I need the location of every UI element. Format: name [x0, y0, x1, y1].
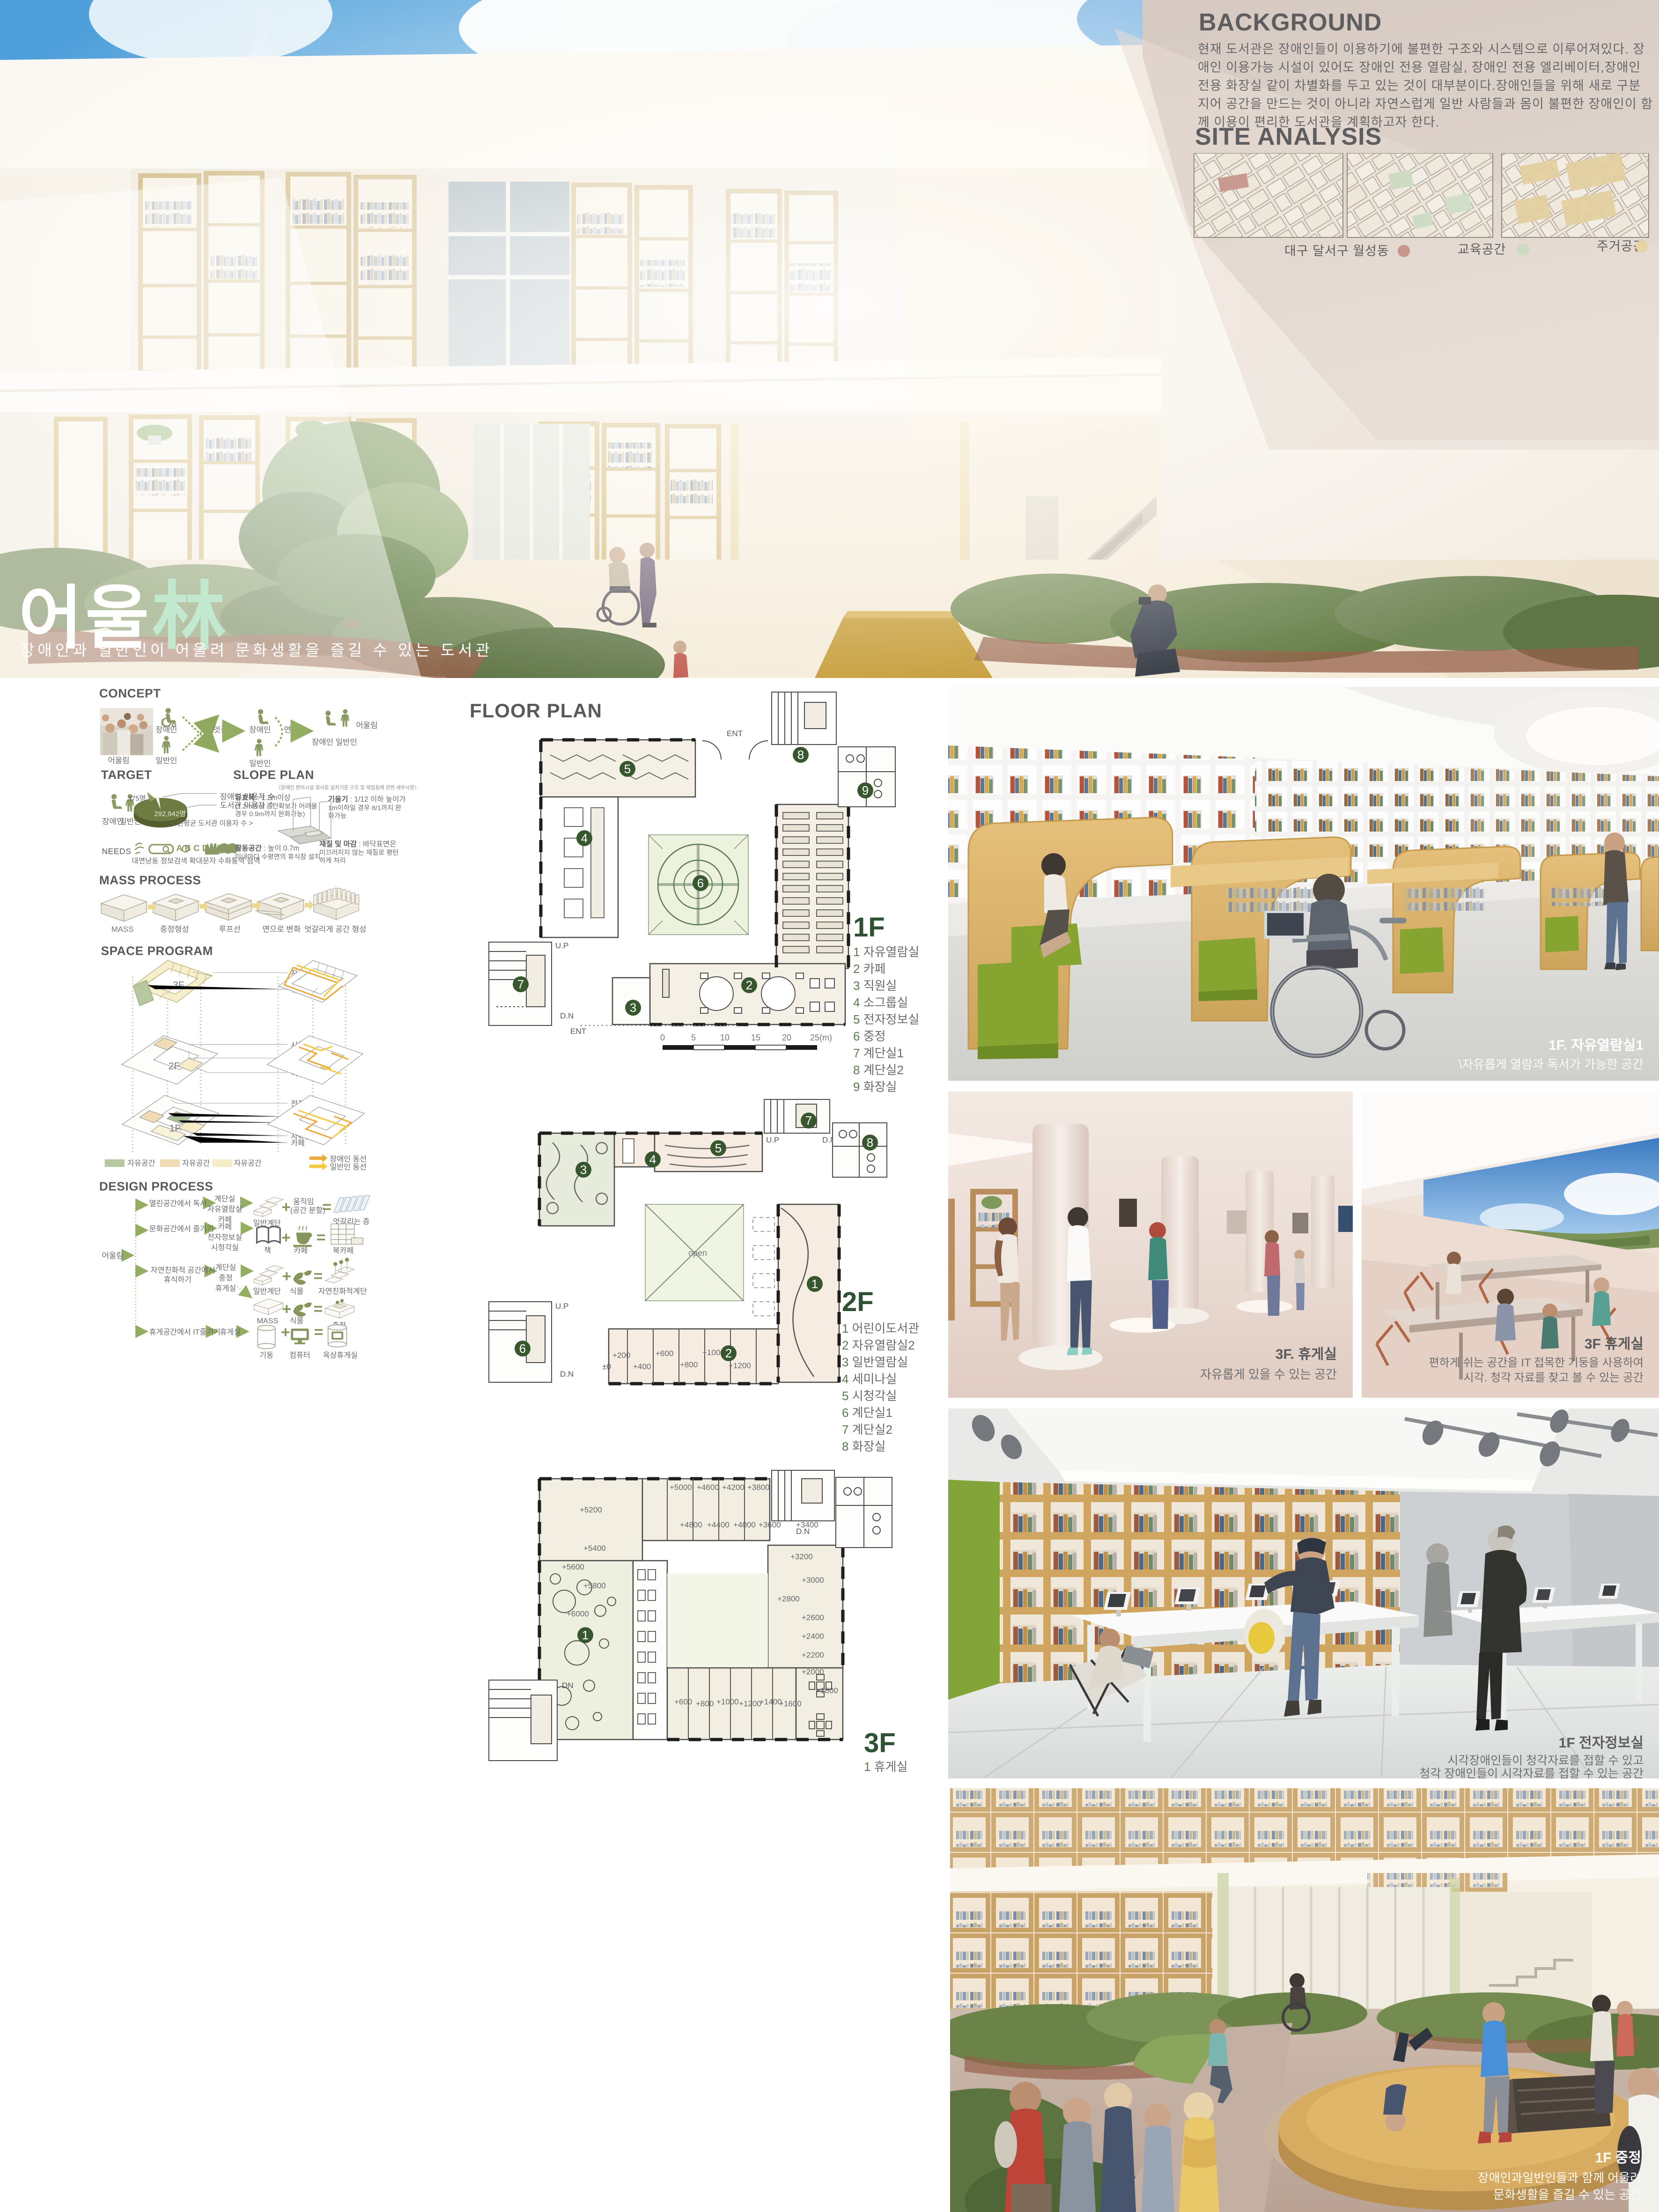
svg-text:어울림: 어울림 — [102, 1251, 123, 1260]
svg-text:장애인: 장애인 — [155, 725, 177, 734]
svg-text:+3600: +3600 — [759, 1520, 781, 1529]
svg-text:1F: 1F — [853, 912, 885, 943]
svg-text:+1000: +1000 — [716, 1697, 739, 1706]
svg-text:+1600: +1600 — [779, 1699, 802, 1708]
svg-text:+1200: +1200 — [739, 1699, 761, 1708]
svg-text:292,942명: 292,942명 — [154, 810, 186, 818]
svg-text:5: 5 — [691, 1033, 696, 1042]
svg-text:4: 4 — [649, 1152, 656, 1166]
svg-text:+2400: +2400 — [802, 1632, 824, 1641]
svg-text:+4000: +4000 — [733, 1520, 756, 1529]
svg-text:기둥: 기둥 — [259, 1351, 273, 1359]
svg-text:±0: ±0 — [602, 1362, 611, 1371]
svg-text:휴식하기: 휴식하기 — [164, 1276, 192, 1284]
svg-text:6 계단실1: 6 계단실1 — [842, 1406, 892, 1420]
svg-text:어울림: 어울림 — [356, 721, 377, 730]
svg-text:문화생활을 즐길 수 있는 공간: 문화생활을 즐길 수 있는 공간 — [1493, 2188, 1641, 2202]
svg-text:엇갈림: 엇갈림 — [213, 725, 235, 734]
svg-text:면으로 변화: 면으로 변화 — [262, 925, 301, 934]
svg-text:6 중정: 6 중정 — [853, 1029, 886, 1043]
svg-text:1m이하일 경우 8/1까지 완: 1m이하일 경우 8/1까지 완 — [328, 804, 402, 812]
svg-text:7: 7 — [517, 977, 524, 991]
svg-text:+5000: +5000 — [670, 1483, 692, 1492]
svg-text:장애인 동선: 장애인 동선 — [330, 1155, 367, 1163]
svg-text:U.P: U.P — [766, 1135, 779, 1144]
svg-text:(1.2m이상 공간확보가 어려울: (1.2m이상 공간확보가 어려울 — [235, 802, 317, 810]
svg-text:DN: DN — [562, 1681, 574, 1690]
svg-text:2F: 2F — [169, 1061, 180, 1071]
svg-text:U.P: U.P — [555, 1302, 568, 1311]
svg-text:375명: 375명 — [128, 795, 146, 803]
svg-text:ENT: ENT — [727, 729, 743, 738]
svg-text:+2200: +2200 — [802, 1651, 824, 1659]
svg-text:휴게공간에서 IT즐기기: 휴게공간에서 IT즐기기 — [149, 1328, 221, 1336]
svg-text:=: = — [322, 1199, 332, 1216]
svg-text:휴게실: 휴게실 — [215, 1284, 236, 1293]
svg-text:계단실: 계단실 — [215, 1263, 236, 1272]
svg-text:4 소그룹실: 4 소그룹실 — [853, 995, 908, 1010]
svg-text:식물: 식물 — [290, 1287, 304, 1296]
svg-text:=: = — [314, 1268, 323, 1285]
svg-text:D.N: D.N — [560, 1011, 574, 1020]
svg-text:북카페: 북카페 — [333, 1246, 354, 1255]
svg-text:어울림: 어울림 — [108, 756, 129, 765]
svg-text:미끄러지지 않는 재질로 평탄: 미끄러지지 않는 재질로 평탄 — [319, 849, 398, 857]
svg-text:재질 및 마감 : 바닥표면은: 재질 및 마감 : 바닥표면은 — [319, 840, 396, 848]
svg-text:1 휴게실: 1 휴게실 — [864, 1760, 907, 1774]
svg-text:2 자유열람실2: 2 자유열람실2 — [842, 1338, 915, 1352]
svg-text:+4800: +4800 — [680, 1520, 702, 1529]
svg-text:MASS: MASS — [111, 925, 133, 934]
svg-text:+1200: +1200 — [729, 1361, 751, 1370]
svg-text:+: + — [281, 1324, 290, 1341]
svg-text:FLOOR PLAN: FLOOR PLAN — [470, 700, 602, 722]
svg-text:카페: 카페 — [294, 1246, 308, 1255]
svg-text:NEEDS: NEEDS — [102, 847, 131, 856]
svg-text:교육공간: 교육공간 — [1458, 243, 1506, 257]
svg-text:+: + — [281, 1199, 291, 1216]
svg-text:4 세미나실: 4 세미나실 — [842, 1372, 897, 1386]
svg-text:8: 8 — [797, 748, 804, 762]
svg-text:(공간 분할): (공간 분할) — [290, 1206, 325, 1215]
svg-text:자유공간: 자유공간 — [234, 1159, 262, 1168]
svg-text:9: 9 — [862, 783, 869, 797]
svg-text:MASS: MASS — [257, 1317, 279, 1325]
svg-text:옥상휴게실: 옥상휴게실 — [323, 1351, 358, 1359]
svg-text:7: 7 — [805, 1113, 812, 1128]
svg-text:2: 2 — [725, 1346, 732, 1360]
svg-text:1F 중정: 1F 중정 — [1595, 2150, 1641, 2166]
svg-text:15: 15 — [751, 1033, 760, 1042]
svg-text:25(m): 25(m) — [810, 1033, 832, 1042]
svg-text:8 계단실2: 8 계단실2 — [853, 1063, 904, 1077]
svg-text:0: 0 — [660, 1033, 665, 1042]
svg-text:1F 전자정보실: 1F 전자정보실 — [1559, 1735, 1644, 1751]
svg-text:1: 1 — [811, 1277, 818, 1291]
svg-text:5: 5 — [624, 762, 631, 776]
svg-text:휴게실: 휴게실 — [220, 1328, 241, 1336]
svg-text:중정: 중정 — [219, 1274, 233, 1282]
svg-text:문화공간에서 즐기기: 문화공간에서 즐기기 — [149, 1224, 214, 1233]
svg-text:9 화장실: 9 화장실 — [853, 1080, 897, 1094]
svg-text:2 카페: 2 카페 — [853, 962, 886, 976]
svg-text:연결: 연결 — [284, 725, 298, 734]
svg-text:식물: 식물 — [290, 1317, 304, 1325]
svg-text:8 화장실: 8 화장실 — [842, 1439, 885, 1453]
svg-text:SLOPE PLAN: SLOPE PLAN — [233, 768, 314, 782]
svg-text:활동공간 : 높이 0.7m: 활동공간 : 높이 0.7m — [235, 843, 299, 852]
svg-text:1F. 자유열람실1: 1F. 자유열람실1 — [1548, 1038, 1644, 1053]
svg-text:+5600: +5600 — [562, 1563, 584, 1571]
svg-text:청각 장애인들이 시각자료를 접할 수 있는 공간: 청각 장애인들이 시각자료를 접할 수 있는 공간 — [1419, 1767, 1644, 1778]
svg-text:카페: 카페 — [218, 1223, 232, 1231]
svg-text:3 직원실: 3 직원실 — [853, 979, 897, 993]
svg-text:엇갈리게 공간 형성: 엇갈리게 공간 형성 — [304, 925, 367, 934]
svg-text:< 연평균 도서관 이용자 수 >: < 연평균 도서관 이용자 수 > — [171, 819, 253, 827]
svg-text:3F. 휴게실: 3F. 휴게실 — [1276, 1347, 1337, 1362]
svg-text:자유공간: 자유공간 — [182, 1159, 210, 1168]
svg-text:7 계단실2: 7 계단실2 — [842, 1423, 892, 1437]
svg-text:+800: +800 — [680, 1360, 698, 1369]
svg-text:자유열람실: 자유열람실 — [207, 1205, 242, 1214]
svg-text:+1400: +1400 — [759, 1697, 782, 1706]
svg-text:\자유롭게 열람과 독서가 가능한 공간: \자유롭게 열람과 독서가 가능한 공간 — [1459, 1057, 1644, 1071]
svg-text:+4400: +4400 — [707, 1520, 730, 1529]
svg-text:+: + — [282, 1300, 292, 1318]
svg-text:=: = — [314, 1324, 324, 1341]
svg-text:열린공간에서 독서: 열린공간에서 독서 — [149, 1199, 207, 1208]
svg-text:장애인: 장애인 — [249, 725, 271, 734]
svg-text:1 자유열람실: 1 자유열람실 — [853, 945, 919, 959]
svg-text:DESIGN PROCESS: DESIGN PROCESS — [99, 1179, 213, 1193]
svg-text:1 어린이도서관: 1 어린이도서관 — [842, 1321, 919, 1335]
svg-text:일반인 동선: 일반인 동선 — [330, 1163, 367, 1172]
svg-text:CONCEPT: CONCEPT — [99, 686, 161, 700]
svg-text:계단실: 계단실 — [214, 1194, 236, 1203]
svg-text:루프선: 루프선 — [219, 925, 241, 934]
svg-text:ENT: ENT — [570, 1027, 586, 1036]
svg-text:자유공간: 자유공간 — [127, 1159, 155, 1168]
svg-text:전자정보실: 전자정보실 — [207, 1233, 242, 1241]
svg-text:장애인 일반인: 장애인 일반인 — [312, 737, 357, 746]
svg-text:〈장애인 편의시설 경사로 설치기준 구조 및 재질등에: 〈장애인 편의시설 경사로 설치기준 구조 및 재질등에 관한 세부사항〉 — [276, 784, 420, 790]
svg-text:자연친화적 공간에서: 자연친화적 공간에서 — [151, 1266, 215, 1275]
svg-text:3: 3 — [580, 1163, 587, 1177]
svg-text:20: 20 — [782, 1033, 791, 1042]
svg-text:=: = — [317, 1229, 326, 1246]
svg-text:3F 휴게실: 3F 휴게실 — [1585, 1336, 1644, 1352]
svg-text:+2000: +2000 — [802, 1667, 824, 1676]
svg-text:+3200: +3200 — [790, 1552, 813, 1561]
svg-text:3F: 3F — [864, 1728, 896, 1758]
svg-text:+400: +400 — [633, 1362, 651, 1371]
svg-text:+4200: +4200 — [722, 1483, 745, 1492]
svg-text:5: 5 — [715, 1141, 722, 1155]
svg-text:+200: +200 — [612, 1351, 630, 1360]
svg-text:2: 2 — [746, 978, 752, 992]
svg-text:+3800: +3800 — [747, 1483, 770, 1492]
svg-text:MASS PROCESS: MASS PROCESS — [99, 873, 201, 887]
svg-text:+5800: +5800 — [583, 1581, 606, 1590]
svg-text:open: open — [688, 1248, 707, 1258]
svg-text:일반인: 일반인 — [155, 756, 177, 765]
svg-text:+5400: +5400 — [583, 1544, 606, 1553]
svg-text:U.P: U.P — [555, 941, 568, 950]
svg-text:편하게 쉬는 공간을 IT 접목한 기둥을 사용하여: 편하게 쉬는 공간을 IT 접목한 기둥을 사용하여 — [1429, 1357, 1644, 1369]
svg-text:이내마다 수평면의 휴식참 설치: 이내마다 수평면의 휴식참 설치 — [235, 853, 321, 861]
svg-text:자연친화적계단: 자연친화적계단 — [318, 1287, 367, 1296]
svg-text:=: = — [314, 1300, 323, 1318]
svg-text:+5200: +5200 — [580, 1505, 602, 1514]
svg-text:중정형성: 중정형성 — [160, 925, 189, 934]
svg-text:D.N: D.N — [560, 1370, 574, 1379]
svg-text:시청각실: 시청각실 — [211, 1244, 238, 1252]
svg-text:2F: 2F — [842, 1287, 874, 1317]
svg-text:4: 4 — [581, 831, 588, 845]
svg-text:기울기 : 1/12 이하 높이가: 기울기 : 1/12 이하 높이가 — [328, 795, 406, 804]
svg-text:3 일반열람실: 3 일반열람실 — [842, 1355, 908, 1369]
svg-text:TARGET: TARGET — [101, 768, 152, 782]
svg-text:대구 달서구 월성동: 대구 달서구 월성동 — [1284, 244, 1389, 258]
svg-text:10: 10 — [720, 1033, 730, 1042]
svg-text:5 시청각실: 5 시청각실 — [842, 1389, 897, 1403]
svg-text:경우 0.9m까지 완화가능): 경우 0.9m까지 완화가능) — [235, 810, 305, 818]
svg-text:카페: 카페 — [291, 1139, 305, 1148]
svg-text:+: + — [281, 1229, 291, 1246]
svg-text:SPACE PROGRAM: SPACE PROGRAM — [101, 944, 213, 958]
svg-text:5 전자정보실: 5 전자정보실 — [853, 1012, 919, 1026]
svg-text:+2600: +2600 — [802, 1613, 824, 1622]
svg-text:움직임: 움직임 — [293, 1198, 314, 1206]
svg-text:자유롭게 있을 수 있는 공간: 자유롭게 있을 수 있는 공간 — [1200, 1367, 1337, 1381]
svg-text:장애인과일반인들과 함께 어울려: 장애인과일반인들과 함께 어울려 — [1478, 2171, 1641, 2185]
svg-text:+3000: +3000 — [802, 1576, 824, 1585]
svg-text:일반인: 일반인 — [249, 759, 271, 768]
svg-text:컴퓨터: 컴퓨터 — [289, 1351, 310, 1359]
svg-text:D.N: D.N — [796, 1527, 810, 1536]
svg-text:6: 6 — [697, 876, 704, 890]
svg-text:8: 8 — [867, 1135, 873, 1150]
svg-text:시각장애인들이 청각자료를 접할 수 있고: 시각장애인들이 청각자료를 접할 수 있고 — [1447, 1754, 1644, 1767]
svg-text:1: 1 — [582, 1628, 589, 1642]
svg-text:+600: +600 — [674, 1697, 692, 1706]
svg-text:1F: 1F — [170, 1123, 181, 1134]
svg-text:+4600: +4600 — [697, 1483, 719, 1492]
svg-text:+: + — [282, 1268, 292, 1285]
svg-text:6: 6 — [519, 1342, 526, 1356]
svg-text:+1800: +1800 — [816, 1686, 838, 1695]
svg-text:하게 처리: 하게 처리 — [319, 856, 346, 864]
svg-text:3: 3 — [630, 1001, 636, 1015]
svg-text:7 계단실1: 7 계단실1 — [853, 1046, 904, 1060]
svg-text:유효폭 : 1.2m이상: 유효폭 : 1.2m이상 — [235, 793, 291, 802]
svg-text:일반계단: 일반계단 — [253, 1287, 281, 1296]
svg-text:+600: +600 — [656, 1349, 673, 1358]
svg-text:시각. 청각 자료를 찾고 볼 수 있는 공간: 시각. 청각 자료를 찾고 볼 수 있는 공간 — [1463, 1371, 1644, 1384]
svg-text:+800: +800 — [696, 1699, 714, 1708]
svg-text:책: 책 — [264, 1246, 271, 1255]
svg-text:+2800: +2800 — [777, 1594, 800, 1603]
svg-text:A B C D: A B C D — [176, 843, 208, 853]
